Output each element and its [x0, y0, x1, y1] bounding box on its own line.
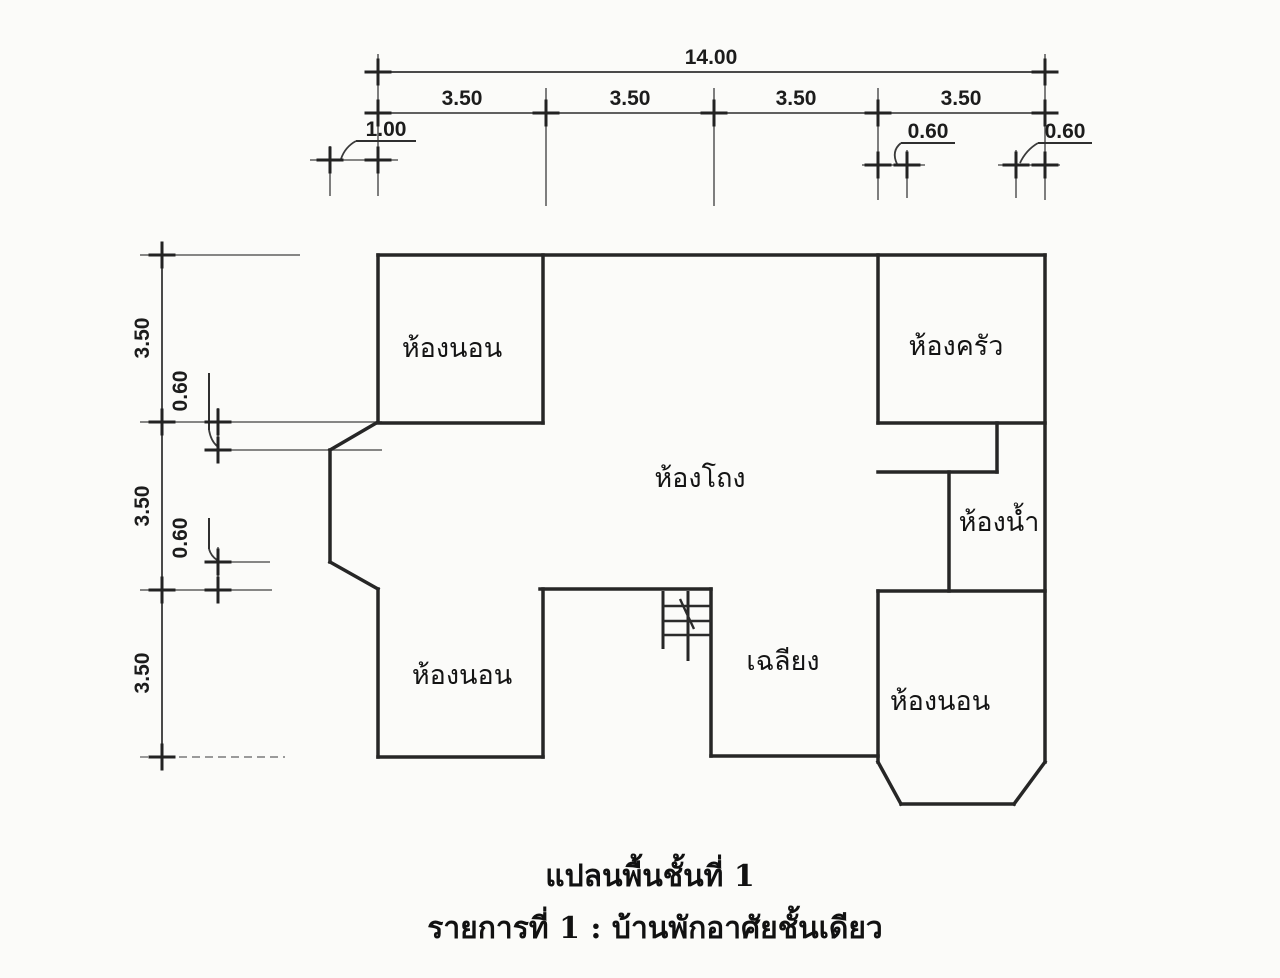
dim-label-span: 3.50	[610, 87, 651, 110]
dim-label-offset: 1.00	[366, 118, 407, 141]
top-dimensions: 14.00 3.50 3.50 3.50 3.50 1.00 0.60 0.60	[310, 46, 1092, 206]
dim-label-offset: 0.60	[169, 371, 192, 412]
room-label-kitchen: ห้องครัว	[909, 331, 1004, 361]
dim-label-span: 3.50	[131, 318, 154, 359]
room-label-hall: ห้องโถง	[654, 463, 745, 493]
dim-label-span: 3.50	[131, 486, 154, 527]
scanned-floor-plan-page: 14.00 3.50 3.50 3.50 3.50 1.00 0.60 0.60…	[0, 0, 1280, 978]
captions: แปลนพื้นชั้นที่ 1 รายการที่ 1 : บ้านพักอ…	[427, 853, 883, 946]
wall-segment-chamfer	[330, 562, 378, 589]
wall-segment-chamfer	[1014, 762, 1045, 804]
room-label-bedroom-top-left: ห้องนอน	[402, 333, 502, 363]
dim-label-total-width: 14.00	[685, 46, 738, 69]
caption-plan-title: แปลนพื้นชั้นที่ 1	[545, 853, 755, 894]
dim-label-offset: 0.60	[1045, 120, 1086, 143]
leader-hook	[895, 143, 901, 164]
leader-hook	[1020, 143, 1038, 163]
dim-label-span: 3.50	[442, 87, 483, 110]
room-label-bedroom-bottom-right: ห้องนอน	[890, 686, 990, 716]
wall-segment-chamfer	[878, 762, 901, 804]
leader-hook	[341, 141, 356, 159]
dim-label-span: 3.50	[776, 87, 817, 110]
leader-hook	[209, 430, 217, 446]
leader-hook	[209, 549, 217, 560]
room-label-bedroom-bottom-left: ห้องนอน	[412, 660, 512, 690]
dim-label-span: 3.50	[941, 87, 982, 110]
caption-item-title: รายการที่ 1 : บ้านพักอาศัยชั้นเดียว	[427, 905, 883, 946]
room-labels: ห้องนอน ห้องครัว ห้องโถง ห้องน้ำ ห้องนอน…	[402, 331, 1040, 716]
left-dimensions: 3.50 3.50 3.50 0.60 0.60	[131, 247, 382, 766]
wall-segment-chamfer	[330, 422, 378, 450]
staircase	[663, 591, 711, 661]
room-label-bathroom: ห้องน้ำ	[959, 502, 1040, 537]
floor-plan-drawing: 14.00 3.50 3.50 3.50 3.50 1.00 0.60 0.60…	[0, 0, 1280, 978]
room-label-porch: เฉลียง	[746, 646, 819, 676]
dim-label-offset: 0.60	[908, 120, 949, 143]
dim-label-span: 3.50	[131, 653, 154, 694]
dim-label-offset: 0.60	[169, 518, 192, 559]
